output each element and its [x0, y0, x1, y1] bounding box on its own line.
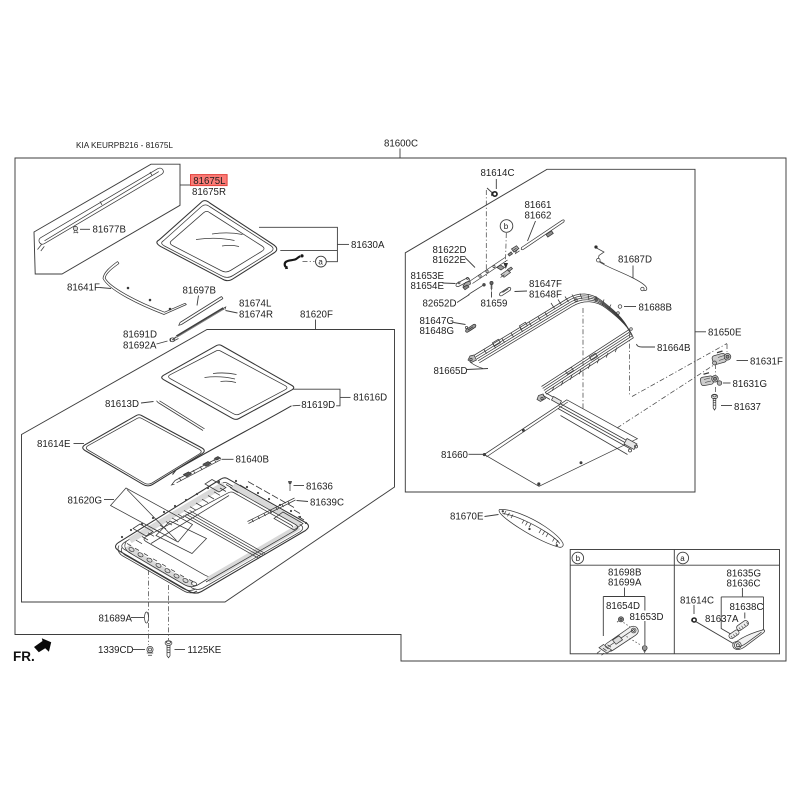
- svg-text:81675R: 81675R: [192, 187, 226, 198]
- svg-text:81650E: 81650E: [708, 328, 742, 339]
- svg-text:81638C: 81638C: [730, 602, 764, 613]
- svg-text:81614C: 81614C: [481, 168, 515, 179]
- svg-text:FR.: FR.: [13, 649, 35, 664]
- svg-text:81665D: 81665D: [434, 366, 468, 377]
- svg-text:81692A: 81692A: [123, 341, 157, 352]
- svg-text:81648G: 81648G: [420, 326, 454, 337]
- svg-text:81691D: 81691D: [123, 330, 157, 341]
- svg-text:81613D: 81613D: [105, 399, 139, 410]
- svg-text:81641F: 81641F: [67, 283, 100, 294]
- svg-text:81664B: 81664B: [657, 343, 690, 354]
- svg-text:81622E: 81622E: [433, 255, 467, 266]
- svg-text:a: a: [680, 554, 685, 563]
- svg-text:81614E: 81614E: [37, 439, 71, 450]
- svg-text:81654E: 81654E: [411, 281, 445, 292]
- svg-text:81600C: 81600C: [384, 139, 418, 150]
- svg-text:81639C: 81639C: [310, 498, 344, 509]
- svg-text:81675L: 81675L: [193, 176, 226, 187]
- svg-text:81653D: 81653D: [630, 612, 664, 623]
- svg-text:81654D: 81654D: [606, 601, 640, 612]
- svg-text:KIA KEURPB216 - 81675L: KIA KEURPB216 - 81675L: [76, 141, 173, 150]
- svg-text:82652D: 82652D: [423, 299, 457, 310]
- svg-text:81637A: 81637A: [705, 614, 739, 625]
- svg-text:81674R: 81674R: [239, 310, 273, 321]
- svg-text:81648F: 81648F: [529, 290, 562, 301]
- svg-text:81677B: 81677B: [93, 225, 126, 236]
- svg-text:81660: 81660: [441, 450, 469, 461]
- svg-text:81661: 81661: [525, 200, 552, 211]
- svg-text:81614C: 81614C: [680, 595, 714, 606]
- svg-text:81697B: 81697B: [183, 286, 216, 297]
- svg-text:81619D: 81619D: [301, 400, 335, 411]
- svg-text:81662: 81662: [525, 211, 552, 222]
- svg-text:81647F: 81647F: [529, 279, 562, 290]
- svg-text:81631G: 81631G: [733, 379, 767, 390]
- svg-text:a: a: [318, 257, 323, 266]
- svg-text:81631F: 81631F: [750, 357, 783, 368]
- svg-text:81636C: 81636C: [727, 578, 761, 589]
- svg-text:81636: 81636: [306, 482, 333, 493]
- svg-text:81674L: 81674L: [239, 299, 272, 310]
- svg-text:81620G: 81620G: [68, 496, 102, 507]
- svg-text:1339CD: 1339CD: [98, 645, 134, 656]
- svg-text:81699A: 81699A: [608, 578, 642, 589]
- svg-text:81670E: 81670E: [450, 512, 484, 523]
- svg-text:81688B: 81688B: [639, 303, 672, 314]
- svg-text:81689A: 81689A: [99, 614, 133, 625]
- svg-text:81630A: 81630A: [351, 240, 385, 251]
- svg-text:81620F: 81620F: [300, 310, 333, 321]
- svg-text:81659: 81659: [481, 299, 508, 310]
- svg-text:81616D: 81616D: [353, 393, 387, 404]
- svg-text:b: b: [576, 554, 581, 563]
- svg-text:81637: 81637: [734, 402, 761, 413]
- svg-text:81687D: 81687D: [618, 254, 652, 265]
- svg-text:81640B: 81640B: [236, 455, 269, 466]
- svg-text:b: b: [504, 222, 509, 231]
- svg-text:1125KE: 1125KE: [188, 645, 222, 656]
